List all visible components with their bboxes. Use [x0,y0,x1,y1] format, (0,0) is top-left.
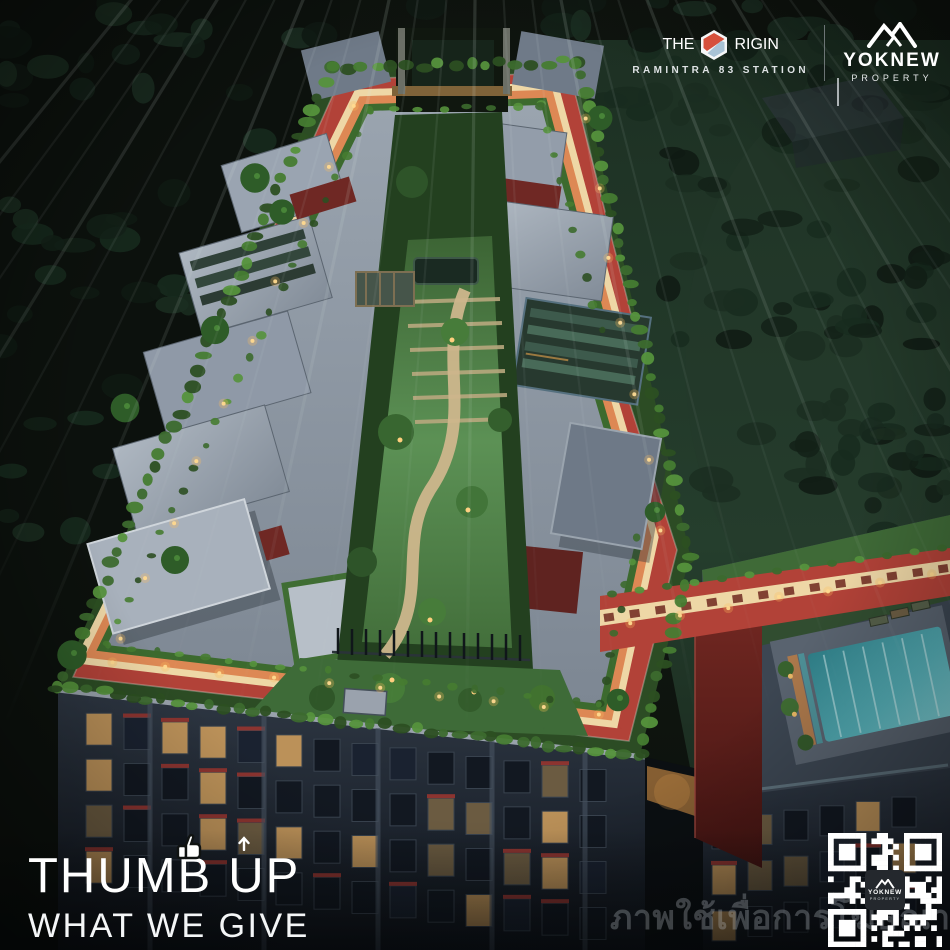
architectural-rendering [0,0,950,950]
project-logo: THE RIGIN RAMINTRA 83 STATION [632,29,809,76]
qr-center-logo: YOKNEW PROPERTY [865,870,905,910]
slogan-up: UP [228,848,300,904]
slogan-line1: THUMB UP [28,848,310,904]
brand-bar: THE RIGIN RAMINTRA 83 STATION YOKNEW PRO… [632,22,944,83]
condo-marketing-image: ภาพใช้เพื่อการโฆษณา THE RIGIN RAMINTRA 8… [0,0,950,950]
mountain-icon [874,879,896,889]
developer-division: PROPERTY [851,73,932,83]
project-name-pre: THE [662,36,694,54]
developer-logo: YOKNEW PROPERTY [840,22,944,83]
qr-code: YOKNEW PROPERTY [828,833,942,947]
up-arrow-icon [236,835,252,851]
origin-hexagon-icon [699,29,729,61]
developer-name: YOKNEW [843,50,941,72]
vignette [0,0,950,950]
project-subtitle: RAMINTRA 83 STATION [632,65,809,76]
mountain-icon [865,22,919,48]
project-name-post: RIGIN [734,36,778,54]
slogan-line2: WHAT WE GIVE [28,907,310,946]
divider [824,25,825,81]
slogan: THUMB UP WHAT WE GIVE [28,848,310,946]
slogan-thum: THUM [28,848,178,904]
thumb-up-icon [176,834,202,860]
slogan-b: B [178,848,213,904]
